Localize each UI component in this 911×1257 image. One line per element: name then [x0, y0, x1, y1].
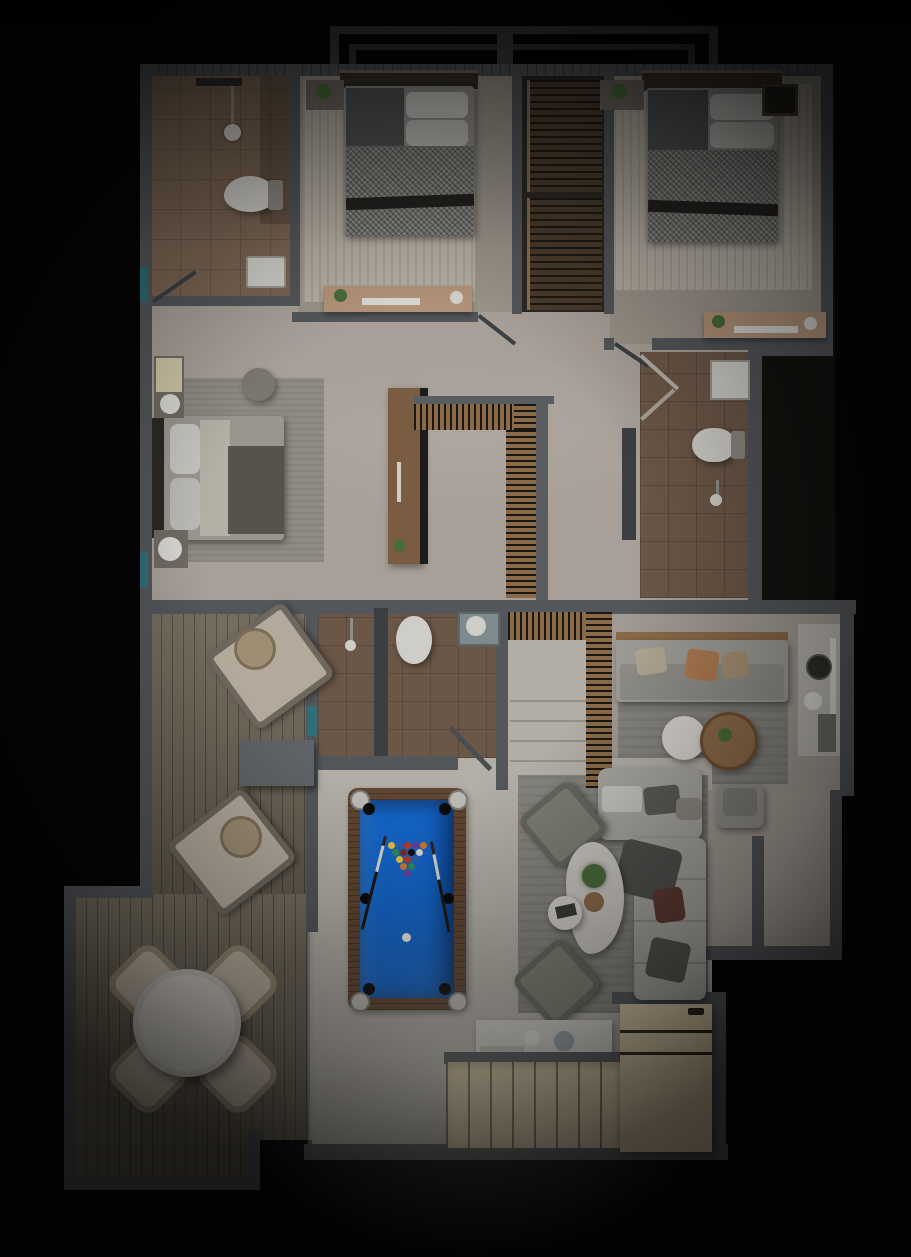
kitchen-glass-sphere — [552, 1029, 576, 1053]
pool-cue-ball — [402, 933, 411, 942]
bath1-bed1-divider-wall — [290, 64, 300, 304]
toilet-bath2 — [692, 428, 736, 462]
coffee-table-plant — [582, 864, 606, 888]
pool-ball — [420, 842, 427, 849]
pool-ball — [404, 842, 411, 849]
entry-inner-wall — [752, 836, 764, 950]
deck-planter-block — [240, 740, 314, 786]
pool-ball — [396, 842, 403, 849]
bedroom1-desk-laptop — [362, 298, 420, 305]
bedroom2-art-frame — [762, 84, 798, 116]
shower-head-bath3 — [345, 640, 356, 651]
pool-ball — [404, 856, 411, 863]
master-wardrobe-plant — [393, 540, 405, 552]
toilet-bath3 — [396, 616, 432, 664]
bedroom2-desk-stool — [804, 317, 817, 330]
pool-pocket-tl — [363, 803, 375, 815]
pool-ball — [416, 849, 423, 856]
pool-corner-cap-tr — [448, 790, 468, 810]
bedroom2-south-wall — [652, 338, 833, 350]
pool-ball — [400, 863, 407, 870]
kitchen-tall-cabinet — [620, 1004, 712, 1152]
entry-right-wall — [830, 790, 842, 956]
shower-bar-bath1 — [196, 78, 242, 86]
bed1-pillow-1 — [406, 92, 468, 118]
window-left-1 — [140, 266, 148, 302]
toilet-tank-bath1 — [268, 180, 283, 210]
stair-tread-1 — [510, 700, 586, 702]
tall-cabinet-handle — [688, 1008, 704, 1015]
stairvoid-edge-top — [414, 396, 554, 404]
dining-table-round — [133, 969, 241, 1077]
bathroom3-south-wall — [306, 756, 458, 770]
bed1-dark-sheet — [346, 88, 404, 148]
master-ac-unit — [156, 358, 182, 392]
family-pillow-tan — [721, 651, 750, 680]
pool-ball — [400, 849, 407, 856]
stairvoid-edge-right — [536, 404, 548, 600]
pool-table-felt — [360, 800, 454, 998]
bed2-dark-sheet — [648, 90, 708, 152]
bed2-nightstand-plant — [612, 84, 627, 99]
bedroom1-desk-stool — [450, 291, 463, 304]
sofa-pillow-dark-bottom — [644, 936, 691, 983]
kitchen-cup — [524, 1030, 540, 1046]
pool-ball — [408, 849, 415, 856]
sink-bath2 — [710, 360, 750, 400]
shower-stem-bath3 — [350, 618, 353, 642]
bed2-pillow-2 — [710, 122, 774, 148]
bathroom2-divider-wall — [622, 428, 636, 540]
stair-tread-3 — [510, 740, 586, 742]
pool-ball — [404, 870, 411, 877]
bed1-pillow-2 — [406, 120, 468, 146]
bedroom2-desk-laptop — [734, 326, 798, 333]
closet-shelf-upper — [527, 80, 602, 192]
family-armchair-seat — [723, 788, 757, 816]
bedroom2-south-wall-stub — [604, 338, 614, 350]
master-sheet-fold — [200, 420, 230, 536]
side-counter-burner — [806, 654, 832, 680]
bathroom3-divider-wall — [374, 608, 388, 756]
kitchen-cabinet-row — [446, 1062, 620, 1148]
family-pillow-beige — [634, 646, 667, 676]
master-lamp-top — [160, 394, 180, 414]
family-table-plant — [718, 728, 732, 742]
bedroom1-south-wall — [292, 312, 478, 322]
family-right-wall — [840, 614, 854, 796]
stairs-rail-right — [586, 612, 612, 788]
pool-ball — [412, 842, 419, 849]
sofa-pillow-maroon — [652, 886, 686, 924]
sink-bath1 — [246, 256, 286, 288]
master-pillow-2 — [170, 478, 200, 530]
deck-corner-wall-v — [248, 1130, 260, 1190]
toilet-tank-bath2 — [731, 431, 745, 459]
master-pouf — [242, 368, 275, 401]
pool-ball — [392, 849, 399, 856]
master-pillow-1 — [170, 424, 200, 474]
side-counter-kettle — [804, 692, 822, 710]
side-counter-stove — [818, 714, 836, 752]
upper-left-wall — [140, 64, 152, 612]
bathroom1-south-wall — [140, 296, 300, 306]
deck-notch-wall — [64, 886, 152, 898]
bathroom2-right-wall — [748, 344, 762, 612]
family-pillow-orange — [684, 648, 720, 682]
bedroom1-desk-plant — [334, 289, 347, 302]
pool-ball-rack — [388, 842, 428, 878]
master-lamp-bottom — [158, 537, 182, 561]
family-table-wood — [700, 712, 758, 770]
kitchen-right-wall — [712, 1002, 726, 1154]
bed1-blanket — [346, 146, 474, 236]
window-deck — [307, 706, 317, 736]
roof-wall-stub — [497, 28, 513, 68]
pool-ball — [412, 856, 419, 863]
coffee-table-tray — [584, 892, 604, 912]
bed2-blanket — [648, 150, 778, 242]
pool-ball — [396, 856, 403, 863]
pool-corner-cap-br — [448, 992, 468, 1012]
master-wardrobe-handle — [397, 462, 401, 502]
stair-tread-4 — [510, 760, 586, 762]
sink-bowl-bath3 — [466, 616, 486, 636]
stairvoid-rail-right — [506, 430, 536, 598]
pool-pocket-br — [439, 983, 451, 995]
pool-pocket-tr — [439, 803, 451, 815]
stairs-rail-top — [508, 612, 590, 640]
shower-stem-bath1 — [231, 86, 234, 128]
sofa-chaise-blanket — [602, 786, 642, 812]
deck-left-wall-upper — [140, 614, 152, 892]
sliding-glass-line — [308, 932, 313, 1148]
bed1-closet-divider-wall — [512, 64, 522, 314]
window-left-2 — [140, 552, 148, 588]
bedroom2-desk-plant — [712, 315, 725, 328]
wicker-side-table-2 — [220, 816, 262, 858]
stair-tread-2 — [510, 720, 586, 722]
shower-head-bath1 — [224, 124, 241, 141]
pool-ball — [408, 863, 415, 870]
shower-head-bath2 — [710, 494, 722, 506]
bed1-nightstand-plant — [316, 84, 331, 99]
pool-ball — [388, 842, 395, 849]
family-sofa-trim — [616, 632, 788, 640]
floor-plan-render — [0, 0, 911, 1257]
master-blanket-dark — [228, 446, 284, 534]
tall-cabinet-drawer-line-1 — [620, 1030, 712, 1033]
tall-cabinet-drawer-line-2 — [620, 1052, 712, 1055]
pool-pocket-bl — [363, 983, 375, 995]
sofa-pillow-gray — [676, 798, 702, 820]
pool-corner-cap-bl — [350, 992, 370, 1012]
wicker-side-table-1 — [234, 628, 276, 670]
kitchen-bowl — [498, 1026, 512, 1036]
deck-left-wall-lower — [64, 886, 76, 1184]
deck-bottom-wall — [64, 1176, 260, 1190]
entry-bottom-wall — [700, 946, 842, 960]
closet-shelf-lower — [527, 198, 602, 310]
